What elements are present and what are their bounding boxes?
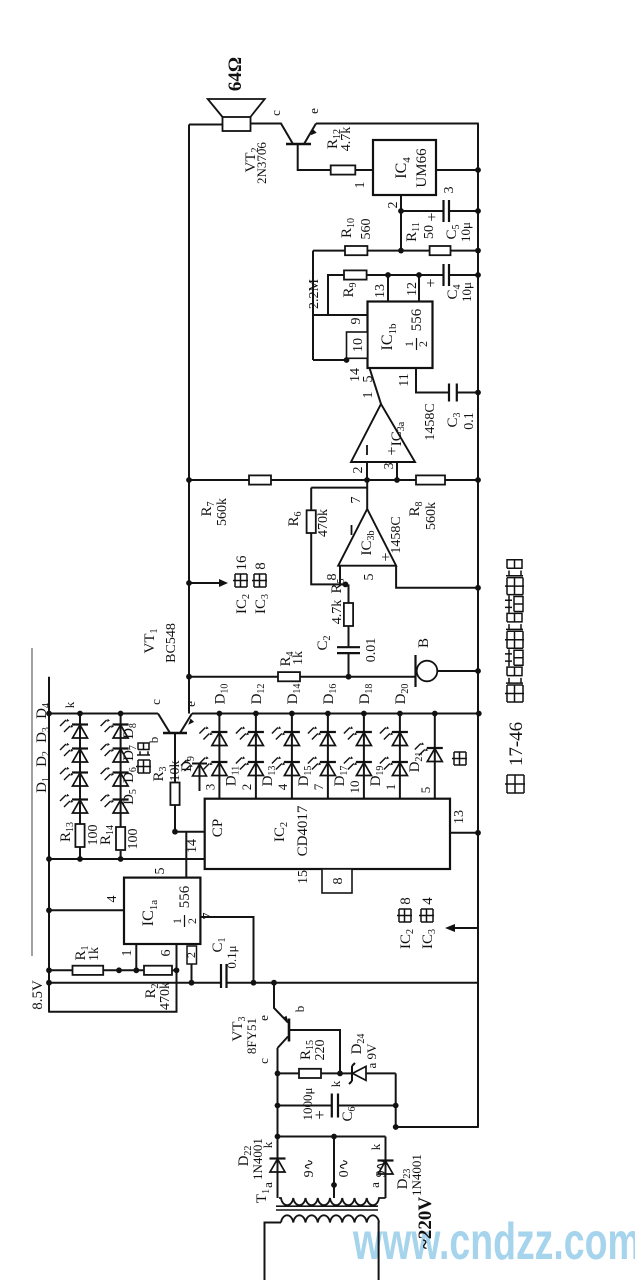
svg-text:BC548: BC548 [164, 623, 179, 663]
svg-text:R10: R10 [339, 218, 357, 238]
svg-text:13: 13 [373, 284, 388, 298]
svg-text:a: a [367, 1182, 382, 1188]
svg-text:D1: D1 [34, 777, 52, 793]
svg-text:7: 7 [201, 913, 216, 920]
svg-text:~220V: ~220V [415, 1197, 436, 1249]
svg-text:e: e [306, 108, 321, 114]
svg-text:1: 1 [383, 784, 398, 791]
svg-text:D20: D20 [393, 684, 411, 705]
svg-text:R6: R6 [286, 511, 304, 526]
svg-text:17-46: 17-46 [506, 722, 527, 766]
svg-text:CD4017: CD4017 [295, 805, 311, 856]
svg-text:+: + [384, 446, 401, 455]
svg-text:1458C: 1458C [389, 516, 404, 553]
svg-text:470k: 470k [316, 509, 331, 537]
svg-text:D2: D2 [34, 751, 52, 767]
svg-text:8FY51: 8FY51 [244, 1018, 259, 1054]
svg-text:+: + [424, 212, 441, 221]
svg-text:9∿: 9∿ [302, 1159, 317, 1178]
svg-text:1: 1 [402, 341, 416, 347]
svg-text:4.7k: 4.7k [330, 600, 345, 625]
svg-text:+: + [423, 278, 440, 287]
svg-text:D3: D3 [34, 727, 52, 743]
svg-text:7: 7 [349, 497, 364, 504]
svg-text:+: + [310, 1110, 329, 1120]
svg-text:3: 3 [442, 187, 457, 194]
svg-text:4.7k: 4.7k [339, 127, 354, 152]
svg-text:0.1: 0.1 [462, 412, 477, 430]
svg-text:k: k [62, 701, 77, 708]
svg-text:8: 8 [325, 574, 340, 581]
svg-text:R8: R8 [407, 501, 425, 516]
svg-text:8: 8 [398, 897, 414, 905]
svg-text:VT1: VT1 [142, 629, 160, 654]
svg-text:5: 5 [418, 787, 433, 794]
svg-text:D16: D16 [321, 684, 339, 705]
svg-text:+: + [378, 552, 395, 561]
svg-text:1N4001: 1N4001 [250, 1138, 265, 1180]
svg-text:k: k [368, 1143, 383, 1150]
svg-text:k: k [328, 1080, 343, 1087]
svg-text:c: c [256, 1058, 271, 1064]
svg-text:12: 12 [405, 282, 420, 296]
svg-text:1: 1 [361, 392, 376, 399]
svg-text:15: 15 [296, 870, 311, 884]
svg-text:560: 560 [359, 219, 374, 240]
svg-text:5: 5 [361, 376, 376, 383]
svg-text:560k: 560k [215, 498, 230, 526]
svg-text:1N4001: 1N4001 [409, 1154, 424, 1196]
svg-text:D21: D21 [407, 752, 425, 773]
svg-text:10: 10 [351, 338, 366, 352]
svg-text:10: 10 [347, 781, 362, 794]
svg-text:1k: 1k [291, 651, 306, 665]
svg-text:10μ: 10μ [458, 222, 473, 242]
svg-text:c: c [268, 110, 283, 116]
svg-text:C6: C6 [340, 1106, 358, 1121]
svg-text:3: 3 [202, 784, 217, 791]
svg-text:0.1μ: 0.1μ [224, 945, 239, 968]
svg-text:10μ: 10μ [459, 282, 474, 302]
svg-text:IC3b: IC3b [359, 531, 377, 556]
svg-text:11: 11 [397, 373, 412, 386]
svg-text:64Ω: 64Ω [225, 57, 246, 91]
svg-text:2: 2 [184, 952, 198, 958]
svg-text:8.5V: 8.5V [30, 980, 46, 1010]
svg-text:2: 2 [239, 784, 254, 791]
svg-text:B: B [416, 638, 432, 648]
svg-text:D10: D10 [212, 684, 230, 705]
svg-text:a 9V: a 9V [364, 1043, 379, 1069]
svg-text:e: e [183, 701, 198, 707]
svg-text:b: b [146, 737, 161, 744]
svg-text:2: 2 [416, 341, 430, 347]
svg-text:14: 14 [185, 839, 200, 853]
svg-text:2: 2 [351, 467, 366, 474]
svg-text:4: 4 [105, 896, 120, 903]
svg-text:IC3: IC3 [420, 929, 438, 949]
svg-text:0∿: 0∿ [337, 1159, 352, 1178]
svg-text:3: 3 [382, 463, 397, 470]
svg-text:4: 4 [275, 783, 290, 790]
svg-text:C2: C2 [315, 635, 333, 650]
svg-text:IC3a: IC3a [389, 421, 407, 446]
svg-text:50: 50 [422, 225, 437, 239]
svg-text:D12: D12 [249, 684, 267, 705]
svg-text:IC2: IC2 [234, 594, 252, 614]
svg-text:a: a [260, 1182, 275, 1188]
svg-text:D6: D6 [121, 767, 139, 783]
svg-text:5: 5 [362, 574, 377, 581]
svg-text:560k: 560k [424, 502, 439, 530]
svg-text:1: 1 [120, 950, 135, 957]
svg-text:470k: 470k [158, 982, 173, 1010]
svg-text:IC2: IC2 [398, 929, 416, 949]
svg-text:8: 8 [253, 562, 269, 570]
svg-text:R13: R13 [58, 822, 76, 842]
svg-text:1: 1 [170, 918, 184, 924]
svg-text:R11: R11 [404, 222, 422, 242]
svg-text:1: 1 [353, 182, 368, 189]
svg-text:0.01: 0.01 [364, 638, 379, 663]
svg-text:13: 13 [452, 810, 467, 824]
svg-text:R3: R3 [151, 766, 169, 781]
svg-text:556: 556 [409, 308, 425, 331]
svg-text:8: 8 [331, 878, 346, 885]
svg-text:4: 4 [420, 897, 436, 905]
svg-text:220: 220 [313, 1040, 328, 1061]
svg-text:D5: D5 [121, 789, 139, 805]
svg-text:7: 7 [311, 783, 326, 790]
svg-text:556: 556 [177, 885, 193, 908]
svg-text:5: 5 [153, 868, 168, 875]
svg-text:6: 6 [159, 950, 174, 957]
svg-text:D18: D18 [357, 684, 375, 705]
svg-text:D14: D14 [285, 684, 303, 705]
svg-text:16: 16 [234, 555, 250, 571]
svg-text:C3: C3 [445, 412, 463, 427]
svg-text:2.2M: 2.2M [307, 278, 322, 309]
svg-text:R9: R9 [341, 282, 359, 297]
svg-text:1458C: 1458C [423, 403, 438, 440]
svg-text:e: e [256, 1015, 271, 1021]
svg-text:b: b [292, 1006, 307, 1013]
svg-text:1k: 1k [87, 947, 102, 961]
svg-text:c: c [148, 699, 163, 705]
svg-text:2N3706: 2N3706 [254, 142, 269, 184]
svg-text:D4: D4 [34, 703, 52, 719]
svg-text:100: 100 [126, 829, 141, 850]
svg-text:UM66: UM66 [414, 148, 430, 188]
svg-text:2: 2 [185, 918, 199, 924]
svg-text:IC3: IC3 [253, 594, 271, 614]
svg-text:T1: T1 [254, 1189, 272, 1203]
svg-text:2: 2 [386, 202, 401, 209]
svg-text:CP: CP [210, 819, 226, 837]
svg-text:9: 9 [349, 318, 364, 325]
